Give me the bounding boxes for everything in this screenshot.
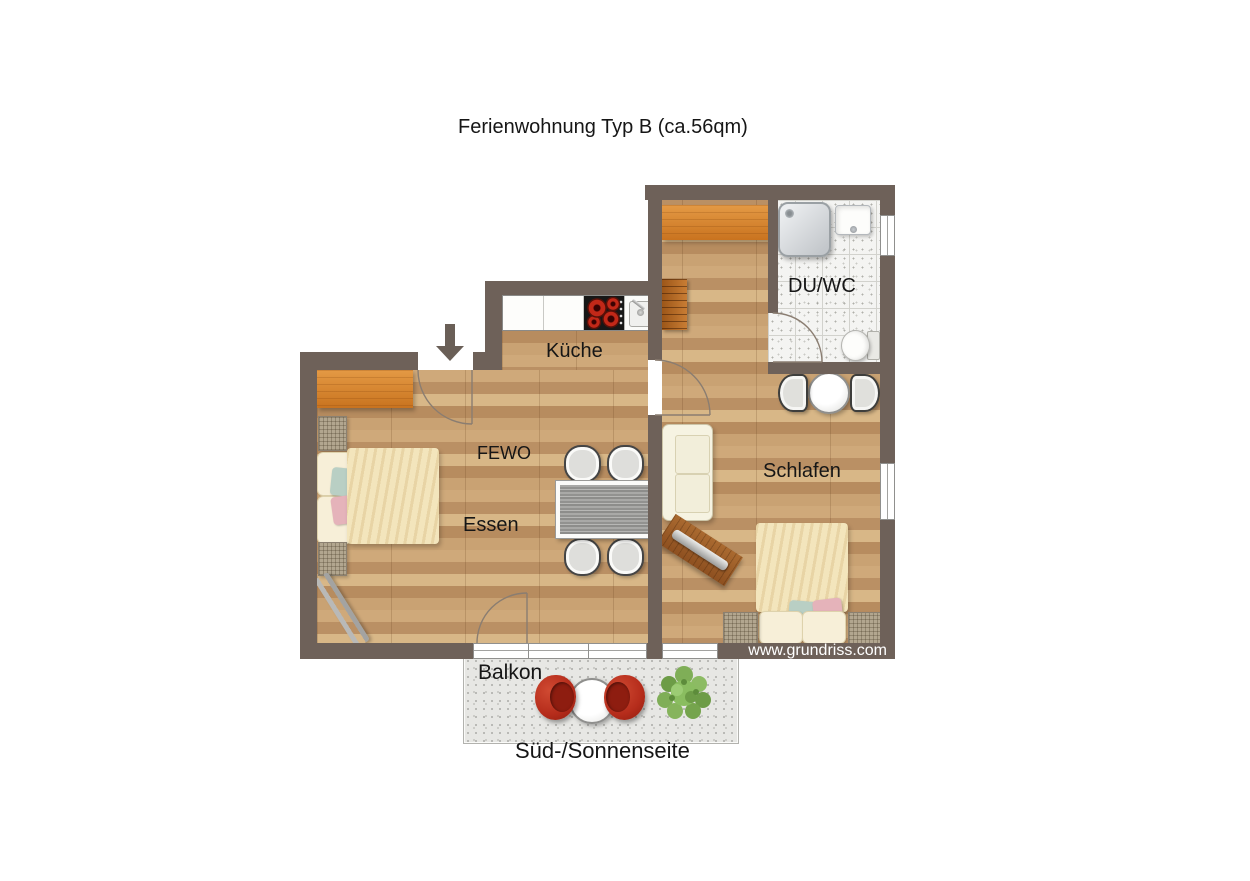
wall-bottom-pillar <box>647 643 662 659</box>
dining-chair-top-left <box>564 445 601 483</box>
wall-bottom-right: www.grundriss.com <box>718 643 895 659</box>
dining-chair-top-right <box>607 445 644 483</box>
balcony-chair-left-seat <box>550 682 574 712</box>
balcony-label: Balkon <box>478 661 542 685</box>
nightstand-left <box>723 612 758 645</box>
watermark: www.grundriss.com <box>748 642 895 659</box>
dining-chair-bottom-right <box>607 538 644 576</box>
balcony-chair-right <box>604 675 645 720</box>
wall-kitchen-top <box>485 281 662 295</box>
bistro-chair-right <box>850 374 880 412</box>
sideboard <box>317 370 413 408</box>
entrance-arrow-shaft <box>445 324 455 347</box>
wall-bedroom-left-upper <box>648 185 662 360</box>
wall-top-living-left <box>300 352 418 370</box>
wall-bedroom-left-lower <box>648 415 662 643</box>
dining-chair-bottom-left <box>564 538 601 576</box>
window-divider <box>588 644 589 658</box>
bed-pillow-left <box>759 611 803 644</box>
bistro-table <box>808 372 850 414</box>
entrance-arrow-icon <box>436 324 464 361</box>
wall-bath-left <box>768 200 778 313</box>
room-label-duwc: DU/WC <box>788 275 856 298</box>
window-bedroom-right <box>880 463 895 520</box>
kitchen-cabinet-divider <box>543 296 544 330</box>
bistro-chair-left <box>778 374 808 412</box>
shower <box>778 202 831 257</box>
side-table-top <box>318 416 347 451</box>
sofabed-duvet <box>347 448 439 544</box>
sofa <box>662 424 713 521</box>
dining-table <box>556 481 653 538</box>
wardrobe <box>662 205 774 240</box>
nightstand-right <box>848 612 883 645</box>
wall-left <box>300 352 317 659</box>
wall-top <box>645 185 895 200</box>
bed-pillow-right <box>802 611 846 644</box>
room-label-fewo: FEWO <box>477 443 531 464</box>
cooktop <box>584 296 624 330</box>
sofa-cushion-top <box>675 435 710 474</box>
room-label-kueche: Küche <box>546 340 603 363</box>
faucet-base <box>637 309 644 316</box>
floorplan-canvas: Ferienwohnung Typ B (ca.56qm) Balkon <box>0 0 1250 881</box>
bath-faucet-icon <box>850 226 857 233</box>
sofa-cushion-bottom <box>675 474 710 513</box>
side-table-bottom <box>318 542 347 576</box>
bedroom-shelf <box>662 279 687 330</box>
wall-bath-bottom <box>768 362 880 374</box>
balcony-plant <box>656 662 712 722</box>
window-living-balcony <box>473 643 647 659</box>
toilet-bowl <box>841 330 870 361</box>
wall-bottom-left <box>300 643 477 659</box>
room-label-schlafen: Schlafen <box>763 460 841 483</box>
window-bathroom <box>880 215 895 256</box>
balcony-chair-right-seat <box>606 682 630 712</box>
kitchen-counter <box>502 295 655 331</box>
balcony: Balkon <box>463 656 739 744</box>
page-title: Ferienwohnung Typ B (ca.56qm) <box>458 116 748 139</box>
entrance-arrow-head <box>436 346 464 361</box>
wall-right <box>880 200 895 659</box>
plant-icon <box>656 662 712 722</box>
balcony-chair-left <box>535 675 576 720</box>
shower-drain-icon <box>785 209 794 218</box>
window-divider <box>528 644 529 658</box>
window-bedroom-balcony <box>662 643 718 659</box>
room-label-essen: Essen <box>463 514 519 537</box>
south-side-caption: Süd-/Sonnenseite <box>515 738 690 764</box>
bath-sink <box>835 205 871 235</box>
